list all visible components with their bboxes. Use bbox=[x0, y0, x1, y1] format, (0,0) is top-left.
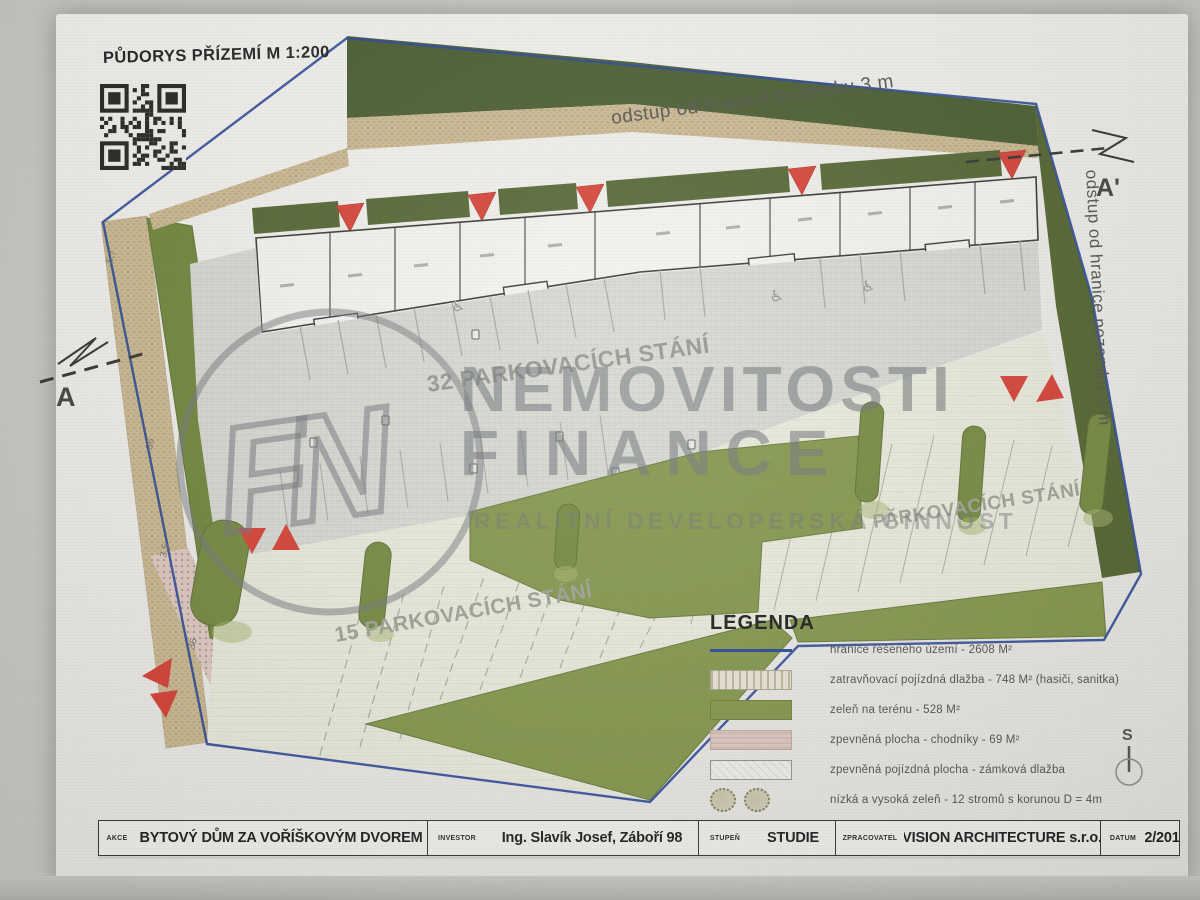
title-block-label-zpracovatel: ZPRACOVATEL bbox=[835, 821, 904, 855]
legend-item-trees: nízká a vysoká zeleň - 12 stromů s korun… bbox=[710, 785, 1170, 815]
legend-title: LEGENDA bbox=[710, 612, 1170, 635]
legend-item-walkway: zpevněná plocha - chodníky - 69 M² bbox=[710, 725, 1170, 755]
section-cut-symbol-left bbox=[58, 338, 108, 366]
legend-item-grass-paver: zatravňovací pojízdná dlažba - 748 M² (h… bbox=[710, 665, 1170, 695]
svg-text:♿: ♿ bbox=[450, 296, 466, 316]
title-block-value-datum: 12/2018 bbox=[1145, 821, 1179, 855]
title-block-label-datum: DATUM bbox=[1100, 821, 1145, 855]
legend-item-green: zeleň na terénu - 528 M² bbox=[710, 695, 1170, 725]
tree-blob-icon bbox=[710, 788, 736, 812]
legend-item-boundary: hranice řešeného území - 2608 M² bbox=[710, 635, 1170, 665]
tree-blob-icon bbox=[744, 788, 770, 812]
title-block-label-stupen: STUPEŇ bbox=[698, 821, 751, 855]
boundary-line-swatch bbox=[710, 649, 792, 652]
title-block-value-akce: BYTOVÝ DŮM ZA VOŘÍŠKOVÝM DVOREM bbox=[135, 821, 427, 855]
section-cut-symbol-right bbox=[1092, 130, 1134, 162]
photo-of-screen: ♿ ♿ ♿ bbox=[0, 0, 1200, 900]
legend: LEGENDA hranice řešeného území - 2608 M²… bbox=[710, 612, 1170, 815]
title-block-label-investor: INVESTOR bbox=[427, 821, 486, 855]
title-block: AKCE BYTOVÝ DŮM ZA VOŘÍŠKOVÝM DVOREM INV… bbox=[98, 820, 1180, 856]
legend-item-block-paving: zpevněná pojízdná plocha - zámková dlažb… bbox=[710, 755, 1170, 785]
svg-text:♿: ♿ bbox=[768, 286, 784, 306]
svg-text:♿: ♿ bbox=[861, 277, 876, 296]
title-block-value-stupen: STUDIE bbox=[751, 821, 835, 855]
grass-paver-swatch bbox=[710, 670, 792, 690]
block-paving-swatch bbox=[710, 760, 792, 780]
photo-edge-shadow bbox=[0, 876, 1200, 900]
qr-code-icon bbox=[100, 84, 186, 170]
green-area-swatch bbox=[710, 700, 792, 720]
trees-swatch bbox=[710, 790, 792, 810]
section-label-a: A bbox=[56, 382, 76, 412]
title-block-value-zpracovatel: VISION ARCHITECTURE s.r.o. bbox=[904, 821, 1100, 855]
title-block-label-akce: AKCE bbox=[99, 821, 135, 855]
walkway-swatch bbox=[710, 730, 792, 750]
title-block-value-investor: Ing. Slavík Josef, Záboří 98 bbox=[486, 821, 698, 855]
